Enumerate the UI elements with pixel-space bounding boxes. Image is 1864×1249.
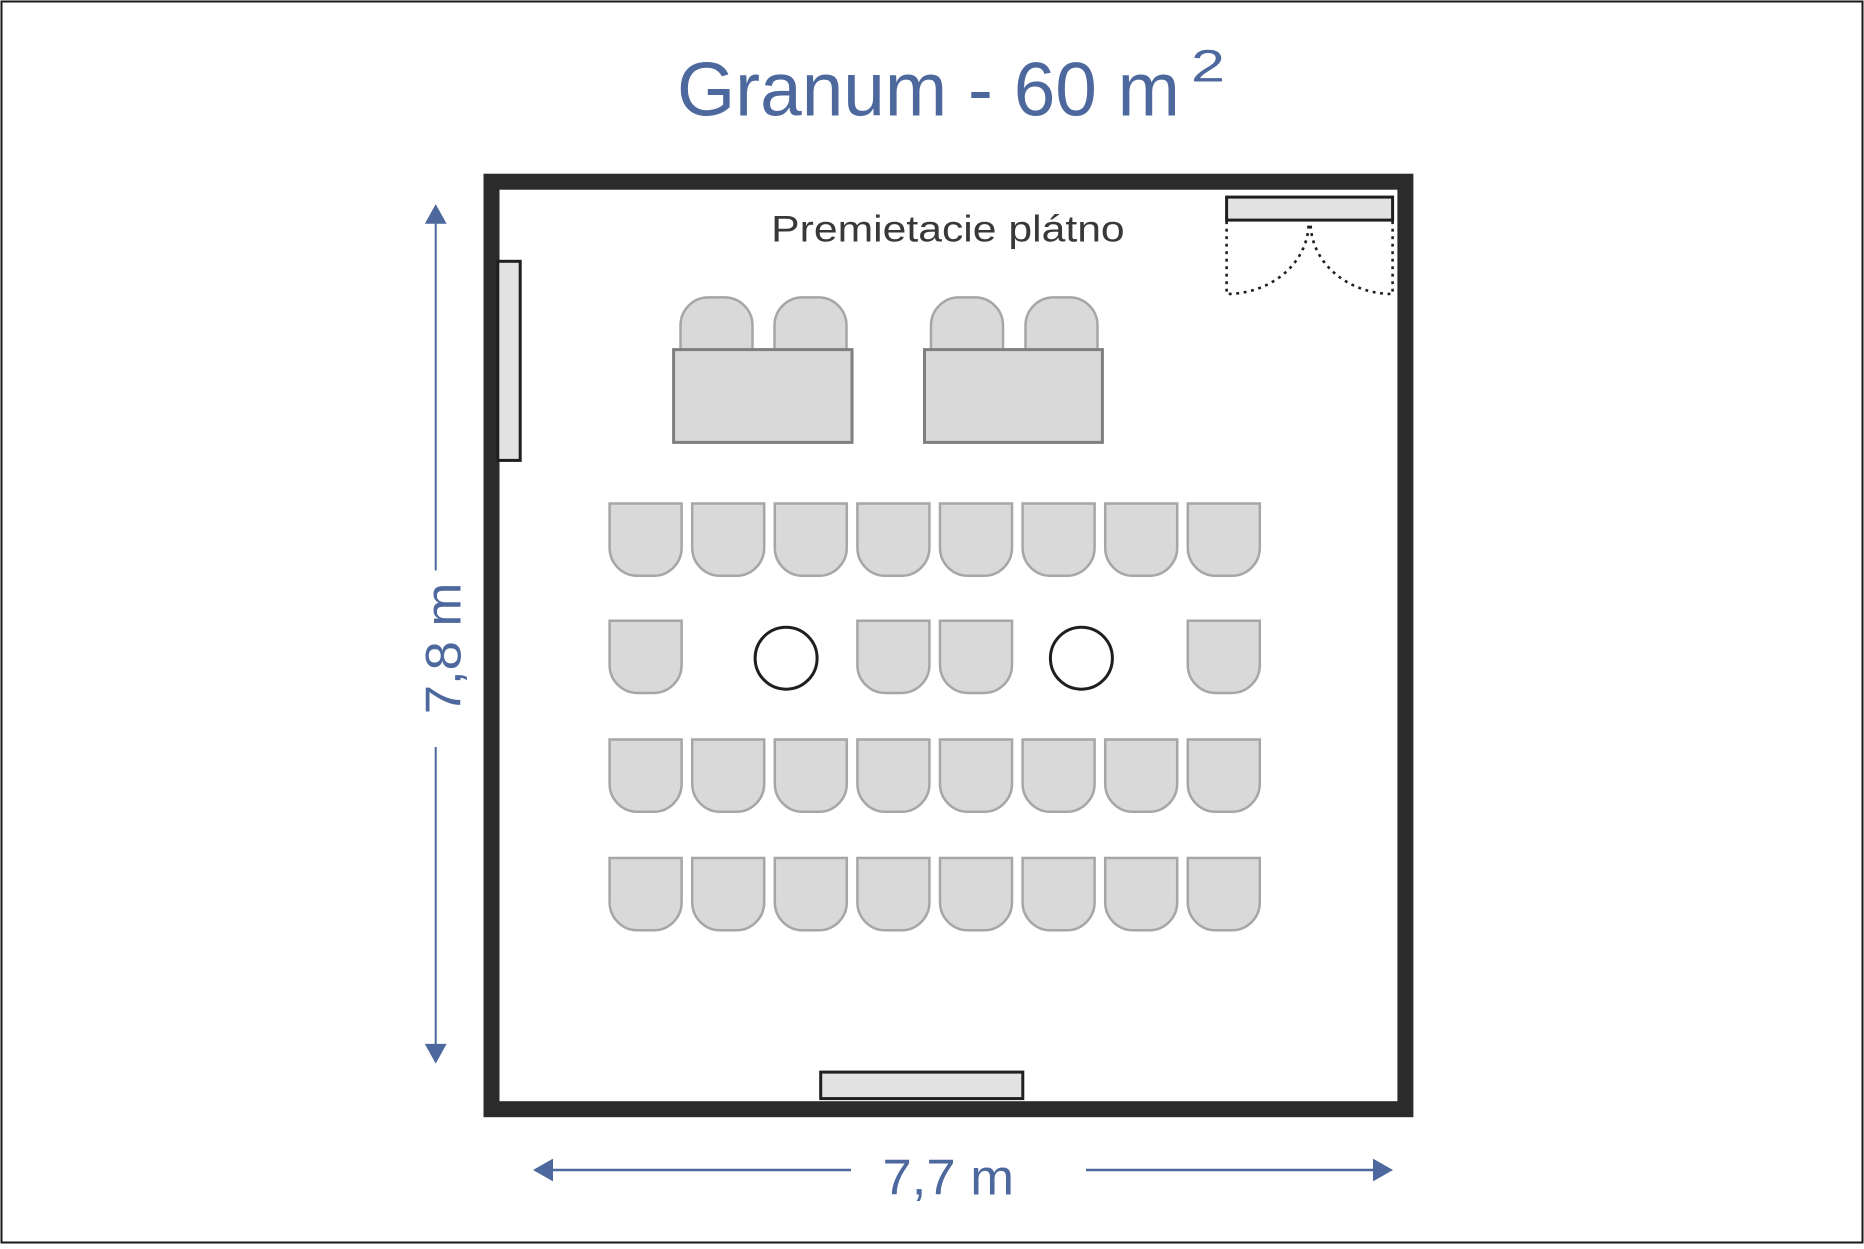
svg-text:7,8 m: 7,8 m bbox=[415, 583, 471, 715]
svg-text:Premietacie plátno: Premietacie plátno bbox=[771, 207, 1124, 249]
svg-text:Granum - 60 m: Granum - 60 m bbox=[677, 47, 1180, 132]
svg-text:7,7 m: 7,7 m bbox=[883, 1149, 1015, 1205]
svg-text:2: 2 bbox=[1191, 41, 1225, 92]
